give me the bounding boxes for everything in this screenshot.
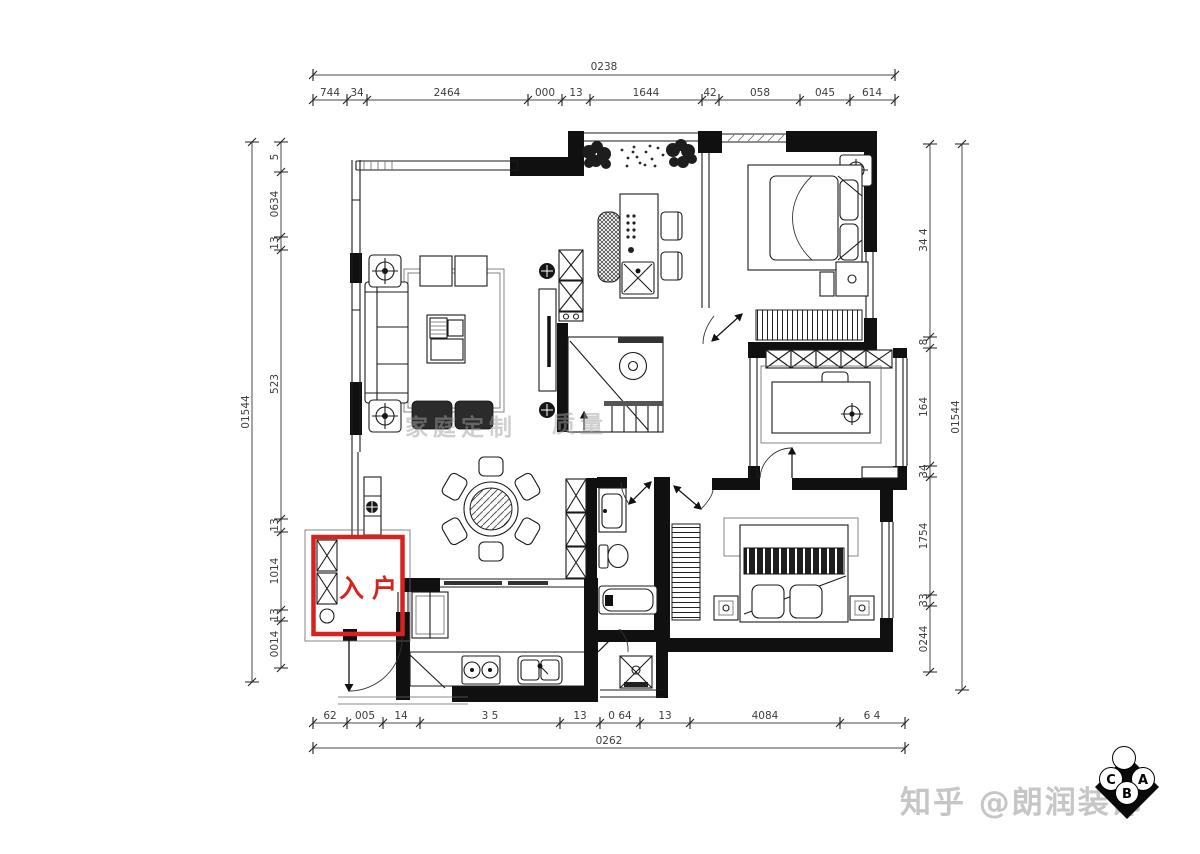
dim-label: 6 4 — [864, 710, 881, 722]
logo-letter-bottom: B — [1122, 787, 1132, 802]
floorplan-screenshot: 0238 744 34 2464 000 13 1644 42 058 045 … — [0, 0, 1200, 854]
dim-label: 42 — [703, 87, 716, 99]
wardrobe — [672, 524, 700, 620]
living-room — [365, 255, 556, 432]
dim-label: 000 — [535, 87, 555, 99]
dim-label: 0014 — [269, 630, 281, 657]
watermark-text: 家庭定制 — [405, 414, 517, 441]
sink — [518, 656, 562, 684]
dim-label: 614 — [862, 87, 882, 99]
logo-letter-right: A — [1138, 773, 1148, 788]
dim-label: 4084 — [752, 710, 779, 722]
dim-label: 744 — [320, 87, 340, 99]
sofa — [365, 282, 408, 403]
dim-label: 164 — [918, 397, 930, 417]
bed — [748, 165, 862, 270]
side-table — [420, 256, 452, 286]
plant-bed-right — [666, 139, 697, 168]
shoe-cabinet — [364, 477, 381, 535]
dining-chair — [513, 516, 541, 546]
dim-label: 5 — [269, 154, 281, 161]
fridge — [412, 592, 448, 638]
dining-chair — [479, 457, 503, 476]
dim-label: 0 64 — [608, 710, 632, 722]
master-door — [703, 314, 742, 344]
nightstand — [714, 596, 738, 620]
pillow — [840, 224, 858, 260]
dim-left-total: 01544 — [240, 395, 252, 429]
dim-label: 045 — [815, 87, 835, 99]
pillow — [840, 180, 858, 220]
dining-chair — [513, 472, 541, 502]
study-door — [760, 448, 792, 478]
bedroom-door — [674, 486, 713, 509]
toilet — [599, 545, 628, 569]
dining-chair — [479, 542, 503, 561]
dimension-left: 01544 5 0634 13 523 13 1014 13 0014 — [240, 138, 288, 686]
entrance-label: 入户 — [339, 574, 405, 603]
dim-label: 13 — [269, 518, 281, 531]
table-glass — [470, 488, 512, 530]
plant-stand-top — [369, 255, 401, 287]
nightstand — [850, 596, 874, 620]
balcony-garden — [582, 139, 697, 169]
dim-label: 3 5 — [482, 710, 499, 722]
wardrobe — [756, 310, 862, 340]
dim-label: 058 — [750, 87, 770, 99]
bathtub — [599, 586, 657, 614]
bedroom-2 — [672, 486, 874, 622]
bed — [740, 525, 848, 622]
dim-label: 005 — [355, 710, 375, 722]
dim-label: 1754 — [918, 522, 930, 549]
dimension-top: 0238 744 34 2464 000 13 1644 42 058 045 … — [309, 61, 899, 106]
dimension-right: 34 4 8 164 34 1754 33 0244 01544 — [918, 140, 969, 694]
master-bedroom — [703, 155, 872, 344]
dim-label: 1644 — [633, 87, 660, 99]
dim-label: 2464 — [434, 87, 461, 99]
dim-label: 34 4 — [918, 228, 930, 252]
dim-label: 0634 — [269, 190, 281, 217]
washbasin — [599, 488, 626, 532]
washing-machine — [620, 656, 652, 688]
dim-label: 8 — [918, 339, 930, 346]
stove — [462, 656, 500, 684]
entry-cabinet — [317, 540, 337, 623]
study-room — [760, 350, 892, 478]
side-table — [455, 256, 487, 286]
dim-label: 14 — [394, 710, 408, 722]
bar-sink-icon — [622, 262, 654, 294]
center-watermarks: 家庭定制 质量 — [405, 412, 608, 441]
dimension-bottom: 62 005 14 3 5 13 0 64 13 4084 6 4 0262 — [309, 710, 909, 754]
logo-letter-left: C — [1106, 773, 1116, 788]
dim-label: 33 — [918, 593, 930, 606]
dim-label: 523 — [269, 374, 281, 394]
dim-label: 1014 — [269, 557, 281, 584]
plant-stand-bottom — [369, 400, 401, 432]
dining-area — [364, 457, 542, 561]
bar-chair — [661, 212, 682, 240]
blanket-band — [744, 548, 844, 574]
watermark-text: 质量 — [552, 412, 608, 438]
tv-wall — [539, 263, 556, 418]
dim-label: 13 — [658, 710, 671, 722]
pillow — [790, 585, 822, 618]
dim-label: 34 — [918, 464, 930, 478]
pillow — [752, 585, 784, 618]
dim-label: 13 — [569, 87, 582, 99]
closet-row — [766, 350, 892, 368]
logo-circle-top — [1113, 747, 1136, 770]
dining-chair — [440, 472, 468, 502]
plant-bed-left — [582, 141, 611, 169]
corner-cabinet — [410, 655, 445, 688]
coffee-table — [427, 315, 465, 363]
dim-right-total: 01544 — [950, 400, 962, 434]
bar-island — [598, 194, 682, 298]
branding: 知乎 @朗润装饰 C A B — [900, 747, 1159, 822]
dim-label: 13 — [573, 710, 586, 722]
gravel-scatter — [621, 145, 665, 168]
dim-label: 13 — [269, 608, 281, 621]
dim-label: 13 — [269, 236, 281, 249]
dim-label: 34 — [350, 87, 364, 99]
dim-top-total: 0238 — [591, 61, 618, 73]
hallway-cabinet — [559, 250, 583, 321]
bench — [598, 212, 620, 282]
dining-chair — [440, 516, 468, 546]
floorplan-canvas: 0238 744 34 2464 000 13 1644 42 058 045 … — [0, 0, 1200, 854]
bar-chair — [661, 252, 682, 280]
desk — [772, 382, 870, 433]
dining-tall-cabinet — [566, 479, 586, 578]
entry-door — [349, 638, 402, 691]
dim-bottom-total: 0262 — [596, 735, 623, 747]
entrance: 入户 — [314, 537, 406, 691]
dim-label: 0244 — [918, 625, 930, 652]
bathroom — [566, 479, 657, 614]
dim-label: 62 — [323, 710, 336, 722]
